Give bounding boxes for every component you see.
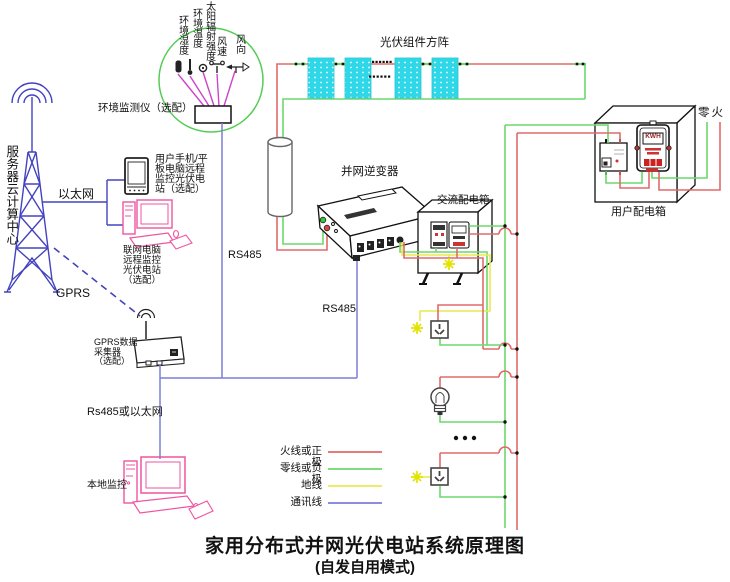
humidity-sensor-icon bbox=[176, 61, 181, 72]
ac-box-legs bbox=[419, 273, 462, 284]
monitor-station-box bbox=[195, 106, 231, 123]
sensor-label-radiation: 太阳辐射强度 bbox=[203, 1, 214, 61]
kwh-meter-display: KWH bbox=[643, 134, 663, 141]
legend-lines bbox=[328, 452, 382, 503]
sensor-label-wind-direction: 风向 bbox=[233, 34, 244, 54]
light-bulb bbox=[431, 388, 449, 415]
dc-connector-positive bbox=[320, 217, 326, 223]
user-box-label: 用户配电箱 bbox=[611, 207, 666, 219]
sensor-label-humidity: 环境湿度 bbox=[176, 15, 187, 55]
ac-box-label: 交流配电箱 bbox=[437, 195, 490, 206]
diagram-subtitle: (自发自用模式) bbox=[0, 560, 730, 576]
ac-distribution-box bbox=[418, 200, 492, 284]
radiation-sensor-icon bbox=[199, 64, 206, 71]
user-box-kwh-meter bbox=[635, 121, 671, 172]
diagram-title: 家用分布式并网光伏电站系统原理图 bbox=[0, 537, 730, 557]
rs485-label-monitor: RS485 bbox=[228, 250, 262, 262]
legend-label-comm: 通讯线 bbox=[270, 497, 322, 508]
socket-outlet-2 bbox=[431, 468, 448, 485]
antenna-waves-icon bbox=[138, 310, 155, 319]
socket-outlet-1 bbox=[431, 321, 448, 338]
diagram-artwork bbox=[0, 0, 730, 582]
tablet-label: 用户手机/平 板电脑远程 监控光伏电 站（选配） bbox=[155, 155, 208, 195]
ground-spark-icons bbox=[411, 258, 455, 483]
rs485-label-inverter: RS485 bbox=[322, 304, 356, 316]
pv-panel bbox=[432, 58, 458, 98]
remote-pc-label: 联网电脑 远程监控 光伏电站 （选配） bbox=[123, 246, 161, 286]
thermometer-icon bbox=[188, 59, 193, 75]
gprs-label: GPRS bbox=[56, 287, 90, 300]
dc-protector-cylinder bbox=[268, 138, 292, 217]
rs485-port bbox=[353, 255, 360, 261]
pv-panel bbox=[395, 58, 421, 98]
wind-vane-icon bbox=[226, 63, 249, 73]
local-monitor-label: 本地监控 bbox=[87, 481, 127, 492]
local-monitor-pc bbox=[124, 457, 213, 519]
tablet-device bbox=[125, 158, 148, 194]
sensor-leads bbox=[178, 71, 235, 106]
gprs-collector-label: GPRS数据 采集器 （选配） bbox=[94, 338, 138, 367]
neutral-live-label: 零火 bbox=[698, 107, 725, 119]
gprs-collector-device bbox=[134, 310, 184, 368]
server-label: 服务器云计算中心 bbox=[4, 145, 17, 245]
ac-box-meter bbox=[449, 222, 469, 248]
pv-array-label: 光伏组件方阵 bbox=[380, 37, 449, 49]
dc-connector-negative bbox=[324, 225, 330, 231]
loads-ellipsis bbox=[454, 436, 476, 440]
rs485-or-ethernet-label: Rs485或以太网 bbox=[87, 407, 163, 419]
ethernet-label: 以太网 bbox=[58, 188, 94, 201]
diagram-canvas: 环境湿度 环境温度 太阳辐射强度 风速 风向 环境监测仪（选配） 服务器云计算中… bbox=[0, 0, 730, 582]
sensor-label-temperature: 环境温度 bbox=[190, 8, 201, 48]
ac-box-breaker bbox=[431, 222, 447, 248]
remote-pc-device bbox=[123, 200, 192, 249]
user-box-breaker bbox=[600, 139, 627, 175]
env-station-label: 环境监测仪（选配） bbox=[98, 103, 193, 114]
sensor-label-wind-speed: 风速 bbox=[214, 36, 225, 56]
anemometer-icon bbox=[210, 61, 225, 73]
pv-panel bbox=[345, 58, 371, 98]
pv-panel bbox=[308, 58, 334, 98]
inverter-label: 并网逆变器 bbox=[341, 166, 399, 178]
legend-label-ground: 地线 bbox=[270, 480, 322, 491]
